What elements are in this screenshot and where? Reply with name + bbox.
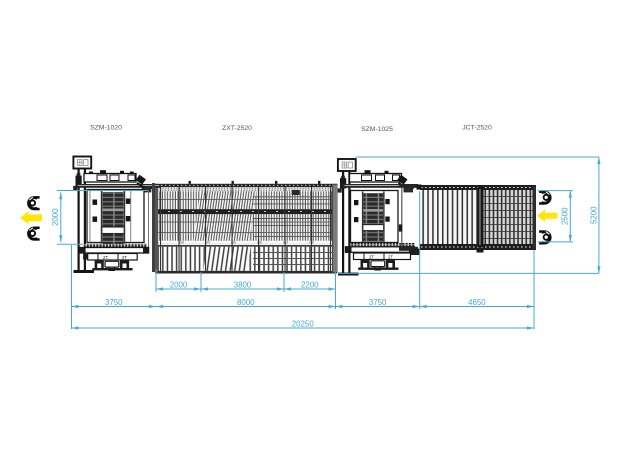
svg-text:ZXT-2520: ZXT-2520 [222, 125, 252, 132]
svg-text:4650: 4650 [468, 298, 486, 307]
svg-text:5200: 5200 [589, 206, 598, 224]
svg-text:2T: 2T [388, 254, 393, 259]
svg-text:SZM-1020: SZM-1020 [90, 125, 122, 132]
svg-text:2000: 2000 [170, 281, 188, 290]
svg-text:8000: 8000 [237, 298, 255, 307]
svg-text:JCT-2520: JCT-2520 [462, 125, 492, 132]
svg-text:20250: 20250 [292, 320, 315, 329]
svg-text:SZM-1025: SZM-1025 [361, 126, 393, 133]
svg-text:2500: 2500 [561, 207, 570, 225]
svg-text:2T: 2T [369, 254, 374, 259]
svg-text:2000: 2000 [51, 208, 60, 226]
svg-text:3800: 3800 [234, 281, 252, 290]
svg-text:2T: 2T [122, 255, 127, 260]
svg-text:2200: 2200 [301, 281, 319, 290]
svg-text:2T: 2T [103, 255, 108, 260]
svg-text:3750: 3750 [369, 298, 387, 307]
svg-text:3750: 3750 [105, 298, 123, 307]
